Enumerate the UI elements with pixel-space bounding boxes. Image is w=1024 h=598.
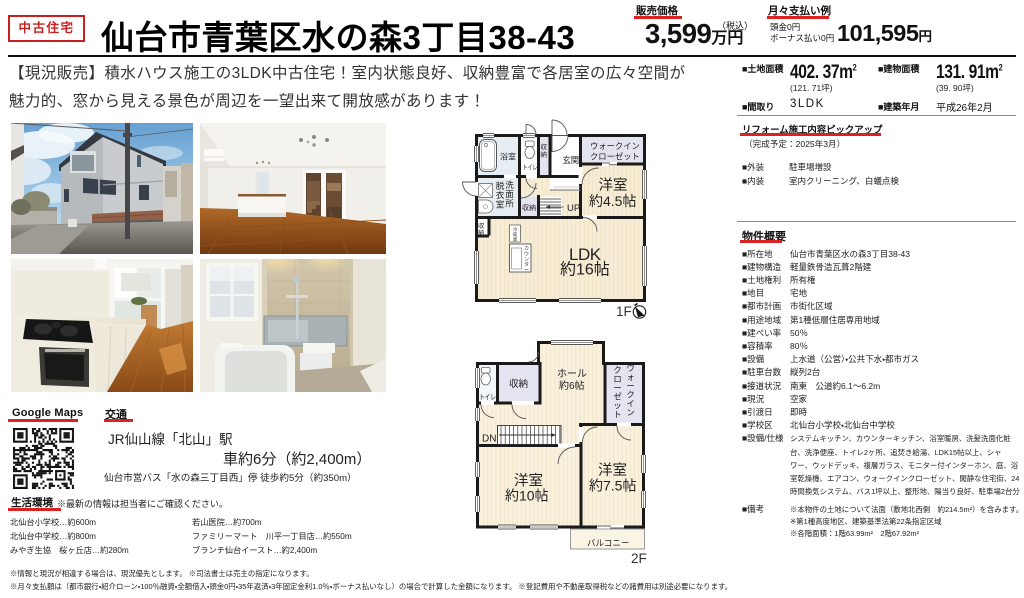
svg-text:約4.5帖: 約4.5帖: [589, 193, 636, 209]
svg-text:トイレ: トイレ: [523, 165, 538, 172]
svg-text:収: 収: [541, 143, 548, 151]
svg-text:室: 室: [496, 198, 505, 209]
svg-text:ー: ー: [524, 268, 529, 274]
svg-text:約6帖: 約6帖: [559, 379, 585, 392]
svg-text:収納: 収納: [509, 378, 528, 390]
svg-text:約10帖: 約10帖: [505, 488, 549, 504]
svg-text:庫: 庫: [513, 236, 518, 243]
svg-text:玄関: 玄関: [563, 155, 580, 165]
svg-text:納: 納: [478, 229, 484, 237]
svg-text:ウォークイン: ウォークイン: [590, 141, 640, 151]
svg-text:所: 所: [505, 198, 514, 208]
svg-text:ト: ト: [613, 410, 621, 420]
svg-text:DN: DN: [482, 434, 496, 445]
svg-text:UP: UP: [567, 203, 580, 214]
svg-text:洋室: 洋室: [599, 177, 628, 194]
svg-text:2F: 2F: [631, 551, 647, 566]
svg-text:収納: 収納: [522, 203, 536, 212]
svg-text:浴室: 浴室: [500, 152, 516, 162]
svg-text:納: 納: [541, 150, 548, 159]
svg-text:洋室: 洋室: [598, 462, 627, 479]
svg-text:約7.5帖: 約7.5帖: [589, 478, 636, 494]
svg-text:約16帖: 約16帖: [560, 261, 610, 279]
svg-text:1F: 1F: [616, 304, 632, 319]
svg-text:ン: ン: [626, 408, 634, 418]
svg-text:バルコニー: バルコニー: [587, 538, 629, 548]
svg-text:ホール: ホール: [557, 368, 587, 380]
svg-text:収: 収: [478, 223, 485, 230]
svg-text:クローゼット: クローゼット: [590, 152, 640, 162]
svg-text:トイレ: トイレ: [479, 393, 496, 402]
